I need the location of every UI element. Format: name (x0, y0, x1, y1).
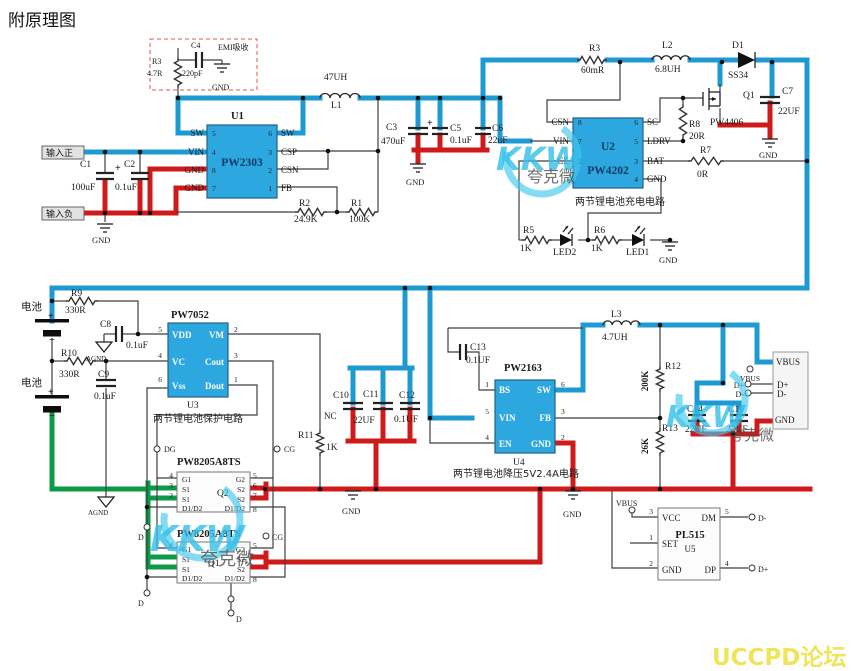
schematic-label: 两节锂电池降压5V2.4A电路 (453, 467, 579, 480)
junction-dot (318, 487, 323, 492)
schematic-label: C11 (363, 390, 379, 400)
schematic-label: GND (759, 150, 777, 160)
schematic-label: 两节锂电池保护电路 (153, 412, 243, 425)
schematic-label: SC (647, 117, 658, 127)
schematic-label: R10 (61, 349, 77, 359)
schematic-label: 5 (725, 507, 729, 516)
schematic-label: 0.1UF (394, 415, 418, 425)
resistor (656, 366, 663, 392)
schematic-label: 6 (634, 118, 638, 127)
schematic-label: R12 (665, 362, 681, 372)
schematic-label: GND (342, 506, 360, 516)
schematic-label: R11 (298, 431, 314, 441)
schematic-label: 4 (634, 175, 638, 184)
schematic-label: R3 (589, 44, 600, 54)
led-icon (640, 228, 645, 234)
schematic-label: 6.8UH (655, 65, 681, 75)
wire-green (52, 413, 148, 489)
schematic-label: 4 (158, 351, 162, 360)
schematic-label: C13 (470, 343, 486, 353)
schematic-label: C6 (492, 124, 503, 134)
junction-dot (805, 159, 810, 164)
schematic-label: D+ (758, 565, 769, 574)
schematic-label: SW (281, 128, 295, 138)
led-icon (560, 234, 572, 246)
junction-dot (326, 149, 331, 154)
junction-dot (416, 96, 421, 101)
junction-dot (335, 210, 340, 215)
input-tag-label: 输入负 (46, 208, 73, 220)
wire-thin (632, 513, 658, 517)
schematic-label: Q1 (743, 91, 755, 101)
schematic-label: C8 (100, 320, 111, 330)
schematic-label: R5 (523, 226, 534, 236)
schematic-label: C5 (450, 124, 461, 134)
schematic-label: 6 (158, 375, 162, 384)
schematic-label: R9 (71, 289, 82, 299)
schematic-label: GND (775, 415, 795, 425)
junction-dot (138, 150, 143, 155)
schematic-label: VIN (188, 147, 204, 157)
schematic-label: GND (185, 183, 205, 193)
schematic-label: EMI吸收 (218, 42, 249, 52)
schematic-label: + (48, 387, 54, 398)
junction-dot (538, 487, 543, 492)
schematic-label: FB (539, 413, 551, 423)
schematic-label: − (49, 335, 55, 346)
schematic-label: GND (563, 509, 581, 519)
schematic-label: CG (272, 533, 283, 542)
schematic-label: 4.7UH (602, 333, 628, 343)
schematic-label: S1 (182, 565, 190, 574)
junction-dot (376, 149, 381, 154)
schematic-label: VBUS (776, 357, 800, 367)
schematic-label: C1 (80, 160, 91, 170)
inductor (652, 56, 690, 60)
schematic-label: D- (758, 514, 767, 523)
resistor (688, 157, 724, 164)
schematic-label: SS34 (728, 71, 748, 81)
schematic-label: C3 (386, 123, 397, 133)
schematic-label: 8 (253, 575, 257, 584)
schematic-label: C12 (399, 391, 415, 401)
junction-dot (658, 323, 663, 328)
schematic-label: 60mR (581, 66, 605, 76)
schematic-label: D1/D2 (182, 504, 203, 513)
schematic-label: D- (777, 389, 787, 399)
junction-dot (374, 487, 379, 492)
schematic-label: VBUS (616, 499, 637, 508)
wire-red (555, 443, 573, 489)
schematic-label: 5 (485, 407, 489, 416)
schematic-label: 3 (634, 157, 638, 166)
schematic-label: R1 (351, 199, 362, 209)
schematic-label: 1 (234, 375, 238, 384)
schematic-label: FB (281, 183, 292, 193)
schematic-label: U5 (685, 544, 696, 554)
schematic-label: G1 (182, 475, 191, 484)
schematic-label: U4 (513, 458, 525, 468)
junction-dot (50, 359, 55, 364)
net-stub (144, 590, 150, 596)
schematic-label: 20R (689, 132, 706, 142)
schematic-label: 1 (268, 184, 272, 193)
junction-dot (481, 96, 486, 101)
schematic-label: GND (92, 235, 110, 245)
schematic-label: GND (659, 255, 677, 265)
schematic-label: 2 (169, 491, 173, 500)
schematic-label: VC (172, 357, 185, 367)
schematic-label: NC (324, 411, 337, 421)
schematic-label: 470uF (381, 137, 405, 147)
kkw-watermark-subtext: 夸克微 (527, 167, 575, 186)
schematic-label: C2 (124, 160, 135, 170)
schematic-label: SET (662, 539, 679, 549)
schematic-label: S2 (237, 485, 245, 494)
schematic-label: LED1 (626, 248, 649, 258)
schematic-label: DM (701, 513, 716, 523)
schematic-label: 1K (326, 443, 338, 453)
agnd-icon (96, 342, 112, 352)
schematic-label: C10 (333, 391, 349, 401)
schematic-label: SW (537, 385, 551, 395)
junction-dot (721, 323, 726, 328)
schematic-label: CG (284, 445, 295, 454)
schematic-label: C7 (782, 87, 793, 97)
schematic-label: 电池 (21, 376, 42, 389)
schematic-label: L1 (331, 101, 342, 111)
junction-dot (138, 211, 143, 216)
schematic-label: PW2303 (221, 157, 263, 169)
schematic-label: D1/D2 (225, 574, 246, 583)
schematic-label: VCC (662, 513, 681, 523)
schematic-label: Vss (172, 381, 186, 391)
schematic-label: 5 (158, 325, 162, 334)
schematic-label: CSN (281, 165, 299, 175)
net-stub (263, 533, 269, 539)
schematic-label: DP (704, 565, 716, 575)
schematic-label: 3 (169, 481, 173, 490)
resistor (522, 236, 552, 243)
net-stub (749, 514, 755, 520)
resistor (679, 104, 686, 138)
wire-blue (697, 325, 723, 403)
junction-dot (263, 487, 268, 492)
schematic-label: R7 (700, 146, 711, 156)
junction-dot (658, 487, 663, 492)
schematic-label: 8 (578, 118, 582, 127)
wire-blue (500, 98, 530, 141)
kkw-watermark-subtext: 夸克微 (200, 549, 254, 570)
schematic-label: BAT (647, 156, 665, 166)
schematic-label: PW2163 (504, 363, 542, 374)
schematic-label: 4.7R (147, 69, 163, 78)
schematic-label: 220pF (182, 69, 203, 78)
inductor (603, 321, 640, 325)
schematic-label: R3 (152, 57, 161, 66)
schematic-label: GND (406, 177, 424, 187)
schematic-label: 22UF (778, 107, 800, 117)
junction-dot (176, 96, 181, 101)
ic-box (573, 118, 643, 188)
schematic-label: S1 (182, 485, 190, 494)
junction-dot (376, 96, 381, 101)
schematic-label: 两节锂电池充电电路 (575, 195, 665, 208)
schematic-label: GND (185, 165, 205, 175)
schematic-label: 4 (169, 471, 173, 480)
schematic-label: 47UH (324, 73, 347, 83)
junction-dot (428, 286, 433, 291)
schematic-label: PW4406 (710, 118, 744, 128)
net-stub (747, 366, 753, 372)
inductor (320, 94, 360, 99)
schematic-label: 0.1UF (466, 356, 490, 366)
schematic-label: + (48, 311, 54, 322)
schematic-label: − (49, 411, 55, 422)
resistor (592, 236, 622, 243)
junction-dot (148, 211, 153, 216)
junction-dot (301, 96, 306, 101)
schematic-label: 6 (268, 129, 272, 138)
wire-thin (448, 328, 460, 352)
schematic-label: D (138, 599, 144, 608)
schematic-label: 100K (349, 215, 370, 225)
net-stub (154, 446, 160, 452)
schematic-label: Dout (205, 381, 224, 391)
junction-dot (403, 286, 408, 291)
schematic-label: 330R (65, 306, 86, 316)
schematic-label: AGND (88, 509, 108, 517)
schematic-label: 1K (591, 244, 603, 254)
junction-dot (498, 96, 503, 101)
forum-watermark: UCCPD论坛 (712, 638, 846, 671)
schematic-label: 0.1uF (450, 136, 472, 146)
schematic-label: 6 (253, 481, 257, 490)
schematic-label: 24.9K (294, 215, 318, 225)
schematic-label: 100uF (71, 183, 95, 193)
schematic-label: R2 (299, 199, 310, 209)
schematic-label: 22UF (353, 416, 375, 426)
schematic-label: 7 (212, 184, 216, 193)
junction-dot (658, 416, 663, 421)
schematic-label: D1 (732, 41, 744, 51)
page-title: 附原理图 (8, 6, 76, 31)
schematic-label: 3 (234, 351, 238, 360)
schematic-label: D (236, 615, 242, 624)
junction-dot (438, 96, 443, 101)
net-stub (228, 610, 234, 616)
junction-dot (136, 332, 141, 337)
net-stub (228, 596, 234, 602)
schematic-label: 2 (234, 325, 238, 334)
schematic-label: VIN (499, 413, 516, 423)
schematic-label: CSP (281, 147, 297, 157)
schematic-label: 电池 (21, 300, 42, 313)
schematic-label: BS (499, 385, 510, 395)
junction-dot (103, 150, 108, 155)
wire-blue (583, 325, 603, 390)
schematic-label: 2 (561, 433, 565, 442)
schematic-label: 6 (561, 380, 565, 389)
schematic-label: 5 (634, 137, 638, 146)
junction-dot (681, 139, 686, 144)
schematic-label: 5 (212, 129, 216, 138)
schematic-label: 0.1uF (126, 341, 148, 351)
schematic-label: SW (191, 128, 205, 138)
schematic-label: S1 (182, 495, 190, 504)
net-stub (274, 446, 280, 452)
schematic-label: 5 (253, 471, 257, 480)
schematic-label: Cout (205, 357, 224, 367)
schematic-label: 8 (212, 166, 216, 175)
schematic-label: PL515 (675, 530, 704, 541)
schematic-label: LDRV (647, 136, 671, 146)
schematic-label: 8 (253, 505, 257, 514)
schematic-label: GND (212, 83, 230, 92)
schematic-label: AGND (86, 355, 106, 363)
input-tag-label: 输入正 (46, 147, 73, 159)
schematic-label: R8 (689, 120, 700, 130)
diode-icon (738, 52, 755, 68)
schematic-label: 4 (485, 433, 489, 442)
junction-dot (618, 60, 623, 65)
led-icon (568, 228, 573, 234)
schematic-label: D (138, 533, 144, 542)
schematic-label: 200K (640, 371, 650, 392)
wire-blue (757, 325, 773, 362)
schematic-label: + (427, 118, 433, 129)
schematic-label: G2 (236, 475, 245, 484)
resistor (316, 430, 323, 456)
schematic-label: 330R (59, 370, 80, 380)
schematic-label: D1/D2 (182, 574, 203, 583)
junction-dot (50, 299, 55, 304)
schematic-label: 3 (561, 407, 565, 416)
schematic-label: CSN (551, 117, 569, 127)
junction-dot (428, 416, 433, 421)
net-stub (749, 565, 755, 571)
schematic-label: 3 (268, 148, 272, 157)
schematic-label: PW4202 (587, 165, 629, 177)
junction-dot (571, 487, 576, 492)
schematic-label: GND (647, 174, 667, 184)
schematic-label: EN (499, 439, 512, 449)
schematic-canvas: 输入正输入负C4EMI吸收220pFGNDR34.7RU1PW2303SWVIN… (0, 0, 855, 671)
schematic-label: U2 (601, 141, 615, 153)
schematic-label: PW7052 (171, 310, 209, 321)
schematic-label: 2 (268, 166, 272, 175)
schematic-label: 4 (212, 148, 216, 157)
schematic-label: 1K (520, 244, 532, 254)
schematic-label: R6 (594, 226, 605, 236)
schematic-label: L3 (611, 310, 622, 320)
schematic-label: U1 (231, 111, 244, 122)
junction-dot (103, 211, 108, 216)
junction-dot (720, 60, 725, 65)
resistor (577, 56, 607, 63)
junction-dot (145, 575, 150, 580)
junction-dot (145, 505, 150, 510)
schematic-label: VM (209, 330, 224, 340)
schematic-page: 输入正输入负C4EMI吸收220pFGNDR34.7RU1PW2303SWVIN… (0, 0, 855, 671)
schematic-label: 2 (649, 559, 653, 568)
junction-dot (668, 238, 673, 243)
led-icon (632, 234, 644, 246)
schematic-label: C4 (191, 41, 200, 50)
mosfet-icon (712, 97, 716, 101)
schematic-label: 7 (253, 491, 257, 500)
schematic-label: PW8205A8TS (177, 457, 241, 468)
junction-dot (586, 238, 591, 243)
schematic-label: 0.1uF (94, 392, 116, 402)
kkw-watermark-subtext: 夸克微 (729, 426, 774, 444)
schematic-label: 0.1uF (115, 183, 137, 193)
agnd-icon (98, 497, 114, 507)
schematic-label: VDD (172, 330, 192, 340)
schematic-label: LED2 (553, 248, 576, 258)
schematic-label: DG (164, 445, 176, 454)
schematic-label: GND (662, 565, 682, 575)
schematic-label: 26K (640, 438, 650, 454)
schematic-label: 0R (697, 170, 709, 180)
schematic-label: 1 (485, 380, 489, 389)
schematic-label: 4 (725, 559, 729, 568)
junction-dot (681, 96, 686, 101)
schematic-label: GND (531, 439, 552, 449)
schematic-label: L2 (662, 41, 673, 51)
schematic-label: 3 (649, 507, 653, 516)
junction-dot (721, 381, 726, 386)
schematic-label: 1 (649, 533, 653, 542)
schematic-label: U3 (187, 401, 199, 411)
schematic-label: + (115, 163, 121, 174)
resistor (174, 58, 181, 88)
junction-dot (770, 60, 775, 65)
schematic-label: C9 (98, 370, 109, 380)
